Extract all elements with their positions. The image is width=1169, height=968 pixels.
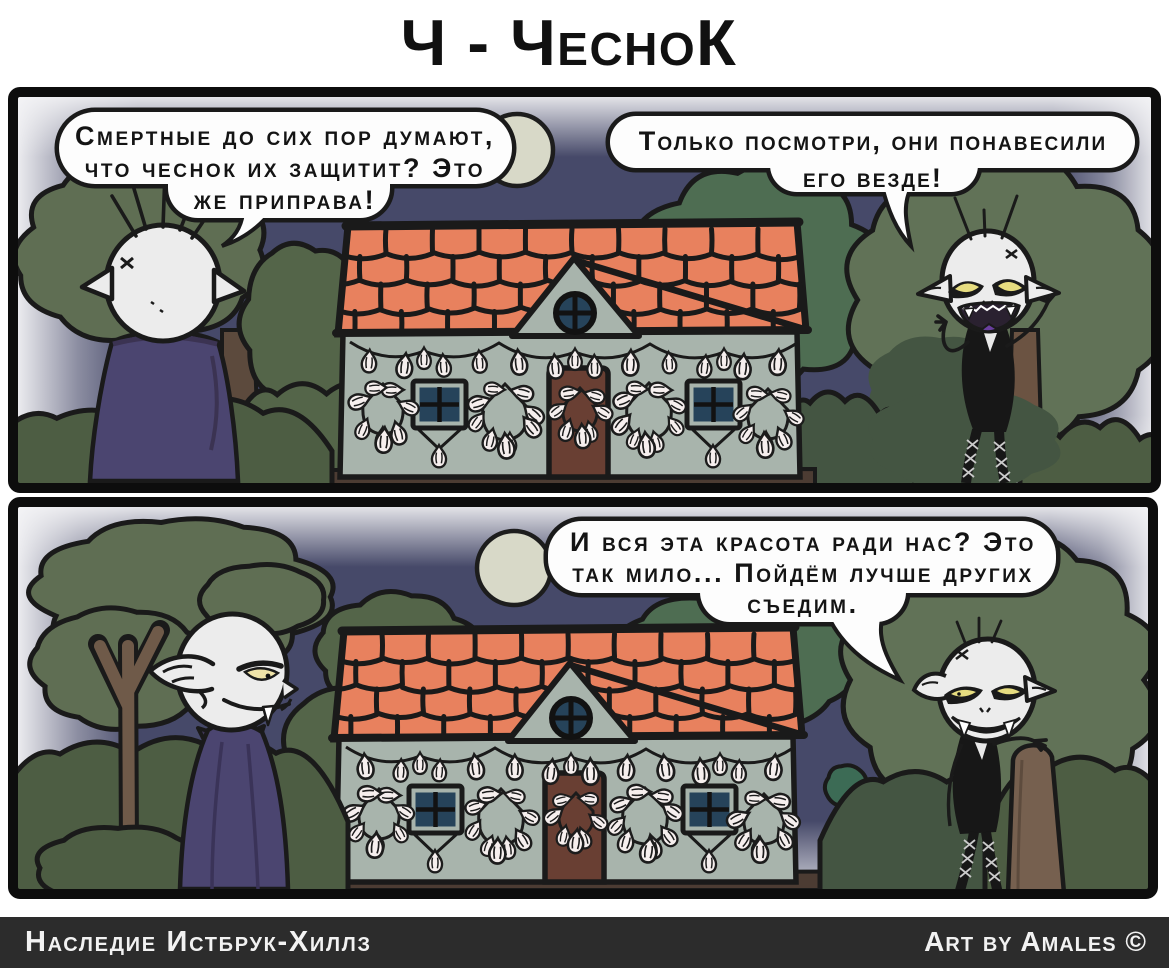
svg-text:его везде!: его везде! (803, 163, 943, 193)
svg-text:съедим.: съедим. (747, 589, 858, 619)
svg-text:Наследие Истбрук-Хиллз: Наследие Истбрук-Хиллз (25, 926, 372, 958)
svg-text:же приправа!: же приправа! (193, 185, 376, 215)
svg-text:Смертные до сих пор думают,: Смертные до сих пор думают, (75, 121, 495, 151)
svg-text:Только посмотри, они понавесил: Только посмотри, они понавесили (639, 126, 1108, 156)
svg-text:Ч - ЧесноК: Ч - ЧесноК (401, 6, 738, 79)
svg-text:что чеснок их защитит? Это: что чеснок их защитит? Это (85, 153, 485, 183)
svg-text:Art by Amales ©: Art by Amales © (924, 926, 1147, 957)
svg-text:И вся эта красота ради нас? Эт: И вся эта красота ради нас? Это (570, 527, 1036, 557)
svg-text:так мило... Пойдём лучше други: так мило... Пойдём лучше других (572, 558, 1034, 588)
